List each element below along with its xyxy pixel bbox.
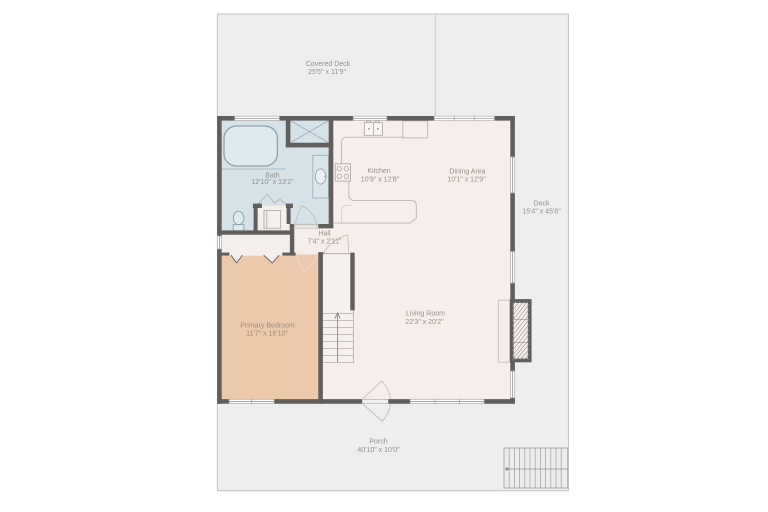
svg-text:15'4" x 45'8": 15'4" x 45'8" [522,209,561,216]
svg-text:Porch: Porch [369,439,387,446]
svg-text:Deck: Deck [534,201,550,208]
svg-text:Dining Area: Dining Area [449,169,485,176]
svg-text:Kitchen: Kitchen [367,168,390,175]
svg-text:22'3" x 20'2": 22'3" x 20'2" [405,319,444,326]
svg-text:10'1" x 12'9": 10'1" x 12'9" [447,177,486,184]
svg-text:25'5" x 11'9": 25'5" x 11'9" [308,69,346,76]
svg-text:12'10" x 13'2": 12'10" x 13'2" [251,179,294,186]
svg-text:Living Room: Living Room [406,311,445,318]
svg-text:7'4" x 2'11": 7'4" x 2'11" [308,239,342,246]
svg-text:Covered Deck: Covered Deck [306,61,351,68]
svg-text:Primary Bedroom: Primary Bedroom [240,323,295,330]
svg-text:11'7" x 16'10": 11'7" x 16'10" [246,331,288,338]
svg-text:10'9" x 12'8": 10'9" x 12'8" [361,177,400,184]
svg-text:Hall: Hall [318,231,331,238]
svg-text:40'10" x 10'0": 40'10" x 10'0" [357,447,400,454]
